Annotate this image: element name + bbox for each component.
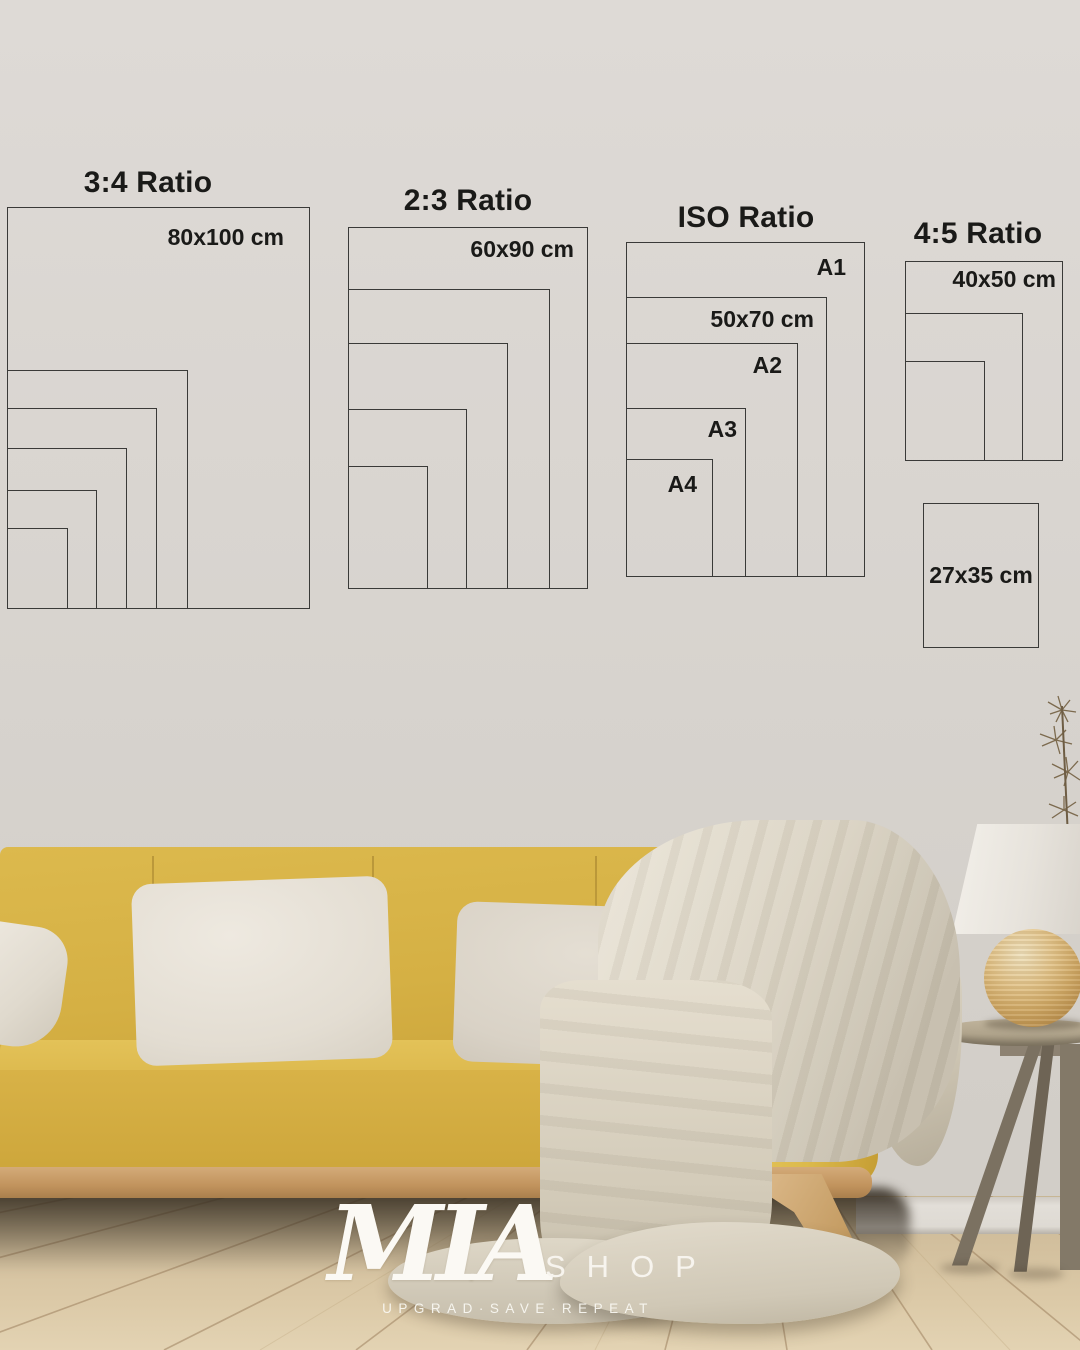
- size-group-title: ISO Ratio: [678, 201, 815, 235]
- size-label: A4: [668, 473, 697, 496]
- size-chart-layer: 3:4 Ratio80x100 cm2:3 Ratio60x90 cmISO R…: [0, 0, 1080, 1350]
- size-rect: [7, 528, 68, 609]
- poster-size-guide-image: 3:4 Ratio80x100 cm2:3 Ratio60x90 cmISO R…: [0, 0, 1080, 1350]
- size-label: 50x70 cm: [710, 308, 814, 331]
- size-group-title: 4:5 Ratio: [914, 217, 1043, 251]
- size-rect: 27x35 cm: [923, 503, 1039, 648]
- size-rect: A4: [626, 459, 713, 577]
- brand-logo-shop: SHOP: [545, 1249, 717, 1285]
- brand-logo-mia: MIA: [328, 1192, 551, 1296]
- size-label: 60x90 cm: [470, 238, 574, 261]
- size-group-title: 3:4 Ratio: [84, 166, 213, 200]
- size-label: 40x50 cm: [952, 268, 1056, 291]
- size-label: A2: [753, 354, 782, 377]
- size-group-title: 2:3 Ratio: [404, 184, 533, 218]
- brand-tagline: UPGRAD·SAVE·REPEAT: [368, 1301, 668, 1316]
- size-label: 80x100 cm: [168, 226, 284, 249]
- size-rect: [348, 466, 428, 589]
- size-label: 27x35 cm: [924, 504, 1038, 647]
- size-label: A3: [708, 418, 737, 441]
- size-rect: [905, 361, 985, 461]
- size-label: A1: [817, 256, 846, 279]
